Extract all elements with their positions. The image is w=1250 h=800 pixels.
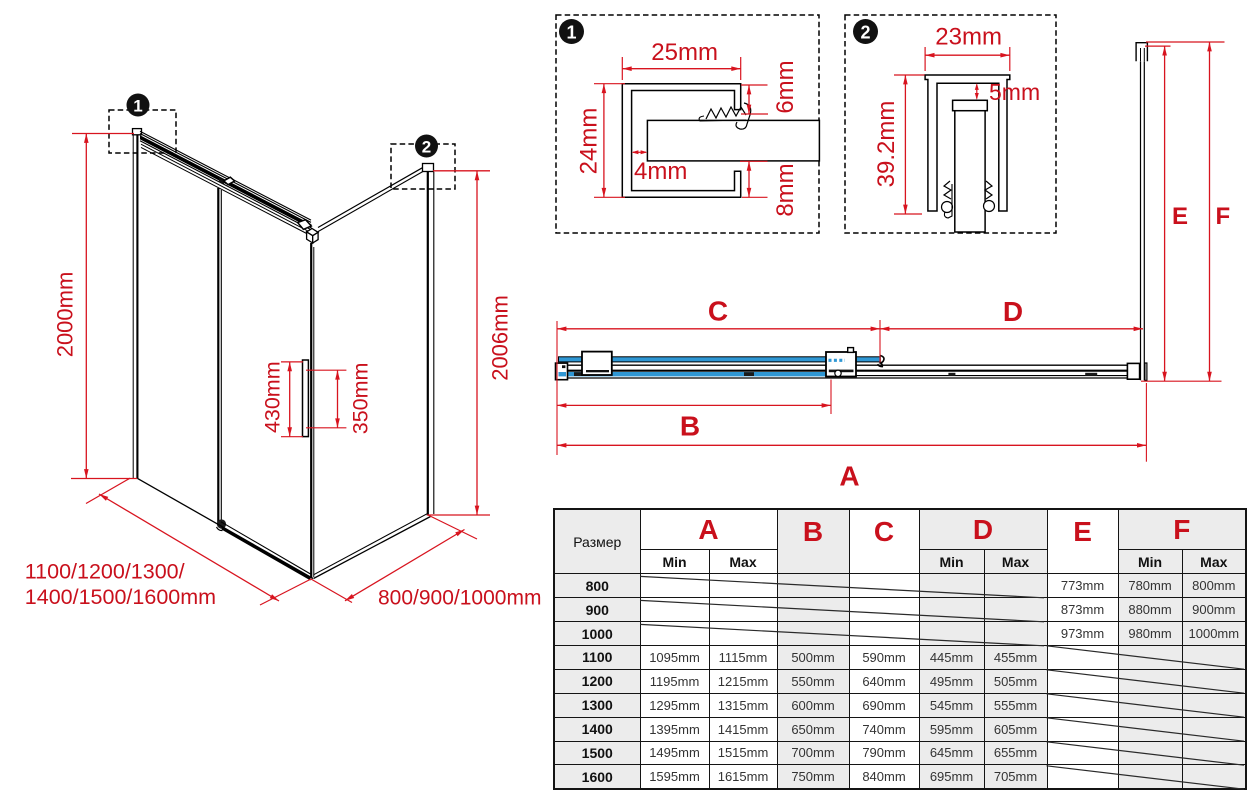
svg-text:39.2mm: 39.2mm bbox=[873, 101, 900, 188]
svg-text:1: 1 bbox=[566, 23, 576, 43]
svg-text:B: B bbox=[680, 411, 700, 442]
svg-text:430mm: 430mm bbox=[261, 361, 285, 433]
svg-text:C: C bbox=[708, 296, 728, 327]
svg-text:D: D bbox=[1003, 296, 1023, 327]
svg-text:4mm: 4mm bbox=[634, 158, 687, 185]
svg-text:2: 2 bbox=[422, 138, 431, 157]
svg-text:E: E bbox=[1172, 203, 1188, 230]
svg-text:F: F bbox=[1215, 203, 1230, 230]
svg-text:350mm: 350mm bbox=[349, 363, 373, 435]
svg-text:25mm: 25mm bbox=[651, 39, 718, 66]
svg-text:24mm: 24mm bbox=[576, 108, 603, 175]
svg-text:2006mm: 2006mm bbox=[488, 295, 513, 381]
svg-text:8mm: 8mm bbox=[772, 163, 799, 216]
svg-text:5mm: 5mm bbox=[989, 79, 1040, 105]
svg-text:2: 2 bbox=[860, 23, 870, 43]
svg-text:6mm: 6mm bbox=[772, 60, 799, 113]
svg-text:1100/1200/1300/: 1100/1200/1300/ bbox=[25, 560, 185, 584]
svg-text:A: A bbox=[839, 461, 859, 492]
svg-text:2000mm: 2000mm bbox=[53, 272, 78, 358]
svg-text:1400/1500/1600mm: 1400/1500/1600mm bbox=[25, 585, 216, 609]
svg-text:1: 1 bbox=[133, 97, 142, 116]
svg-text:23mm: 23mm bbox=[935, 24, 1002, 51]
svg-text:800/900/1000mm: 800/900/1000mm bbox=[378, 587, 541, 610]
